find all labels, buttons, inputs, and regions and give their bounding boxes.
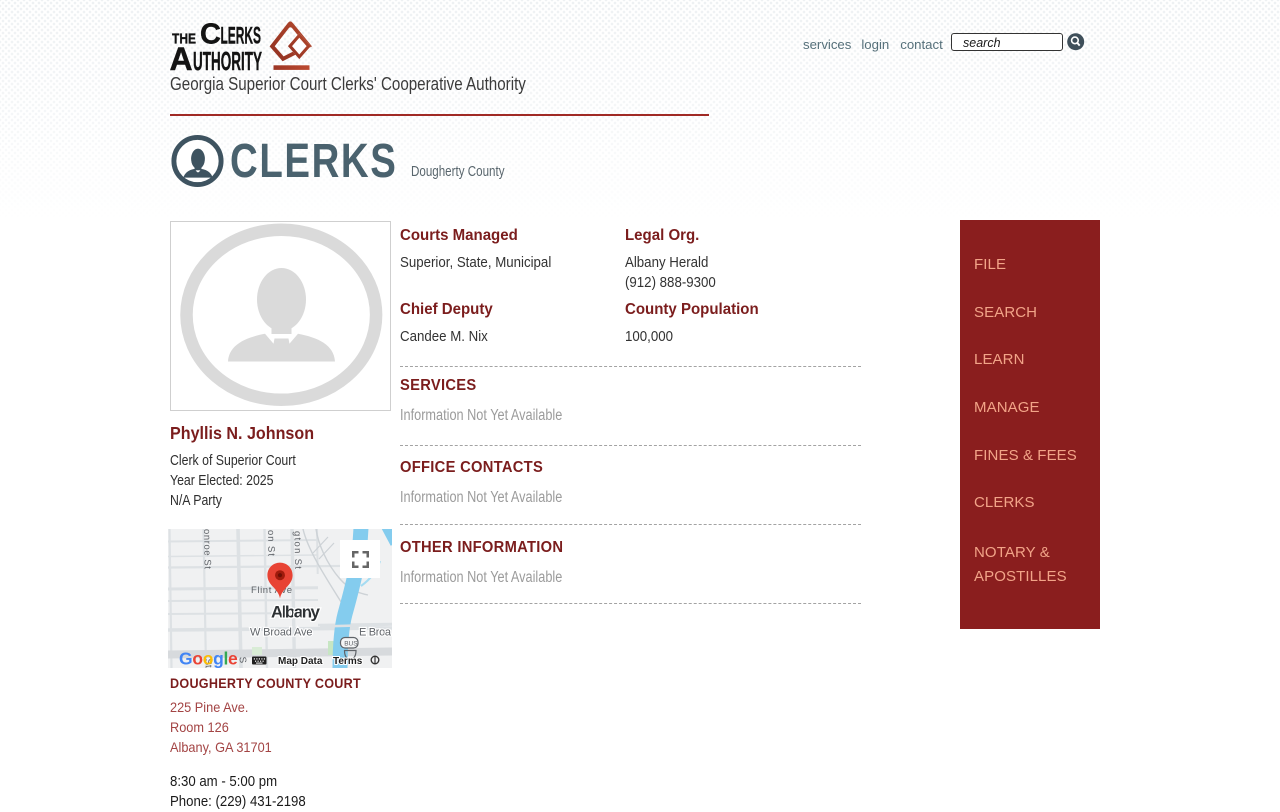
svg-text:Google: Google [179,649,238,669]
svg-text:UTHORITY: UTHORITY [193,46,262,75]
svg-text:on St: on St [265,530,276,557]
svg-text:E Broa: E Broa [359,626,392,638]
svg-text:Albany: Albany [271,602,321,621]
svg-text:W Broad Ave: W Broad Ave [250,626,313,638]
svg-text:gton St: gton St [292,531,304,570]
svg-text:A: A [170,41,193,75]
svg-text:Terms: Terms [333,656,363,667]
svg-text:onroe St: onroe St [201,529,213,569]
svg-text:S: S [237,656,249,663]
svg-text:BUS: BUS [344,640,358,647]
svg-text:Map Data: Map Data [278,656,323,667]
